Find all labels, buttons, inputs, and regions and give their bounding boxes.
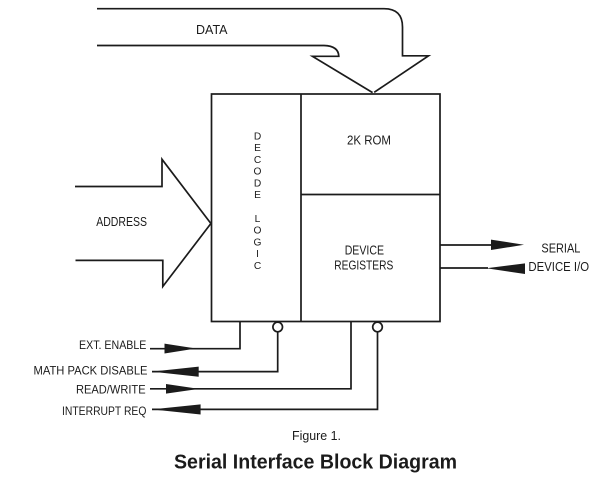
svg-text:I: I — [256, 249, 259, 260]
svg-text:Figure 1.: Figure 1. — [292, 428, 341, 443]
svg-text:EXT. ENABLE: EXT. ENABLE — [79, 338, 146, 352]
svg-text:READ/WRITE: READ/WRITE — [76, 383, 146, 397]
svg-text:REGISTERS: REGISTERS — [334, 259, 393, 273]
svg-text:MATH PACK DISABLE: MATH PACK DISABLE — [34, 364, 148, 378]
svg-text:E: E — [254, 190, 261, 201]
svg-text:INTERRUPT REQ: INTERRUPT REQ — [62, 404, 146, 418]
svg-text:O: O — [254, 226, 262, 237]
svg-text:Serial Interface Block Diagram: Serial Interface Block Diagram — [174, 452, 457, 474]
svg-text:G: G — [254, 238, 262, 249]
svg-text:C: C — [254, 261, 261, 272]
svg-text:L: L — [255, 214, 261, 225]
svg-text:E: E — [254, 143, 261, 154]
svg-text:DATA: DATA — [196, 23, 228, 37]
svg-text:DEVICE I/O: DEVICE I/O — [528, 260, 589, 274]
svg-text:O: O — [254, 167, 262, 178]
svg-text:SERIAL: SERIAL — [541, 241, 580, 255]
svg-text:ADDRESS: ADDRESS — [96, 215, 147, 229]
svg-text:C: C — [254, 155, 261, 166]
svg-text:DEVICE: DEVICE — [345, 244, 384, 258]
svg-text:D: D — [254, 131, 261, 142]
svg-text:D: D — [254, 179, 261, 190]
svg-text:2K ROM: 2K ROM — [347, 134, 391, 148]
